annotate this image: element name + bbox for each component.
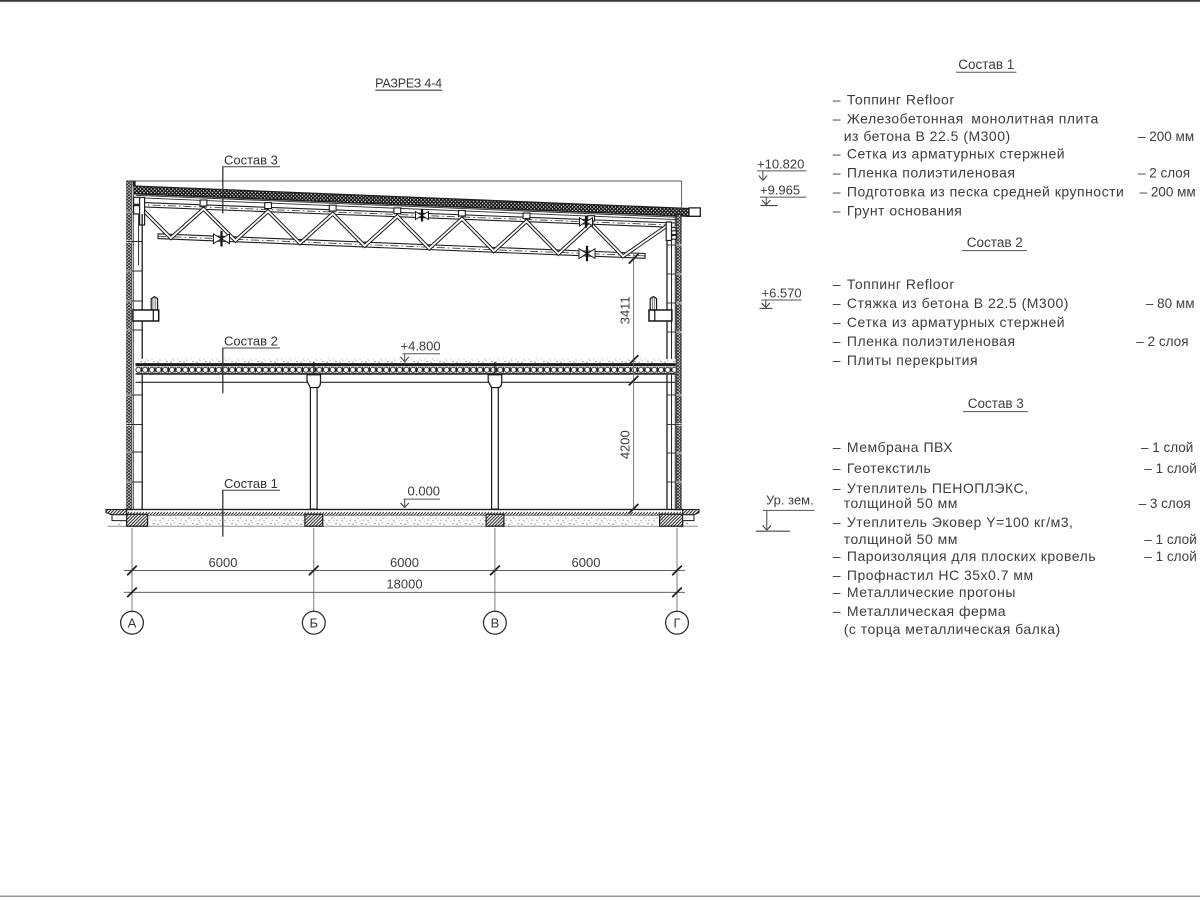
svg-text:Пленка полиэтиленовая: Пленка полиэтиленовая <box>847 164 1016 180</box>
svg-text:6000: 6000 <box>390 555 419 570</box>
svg-text:+9.965: +9.965 <box>760 183 800 198</box>
svg-text:А: А <box>128 615 137 630</box>
svg-text:–: – <box>833 276 841 292</box>
svg-text:В: В <box>491 615 500 630</box>
svg-text:– 200 мм: – 200 мм <box>1138 129 1194 144</box>
svg-text:18000: 18000 <box>386 577 422 592</box>
svg-text:–: – <box>833 584 841 600</box>
svg-text:Ур. зем.: Ур. зем. <box>766 493 814 508</box>
svg-text:Сетка из арматурных стержней: Сетка из арматурных стержней <box>847 314 1065 330</box>
svg-text:Металлические прогоны: Металлические прогоны <box>847 584 1016 600</box>
svg-text:–: – <box>833 514 841 530</box>
svg-text:– 2 слоя: – 2 слоя <box>1138 165 1190 180</box>
svg-text:Утеплитель ПЕНОПЛЭКС,: Утеплитель ПЕНОПЛЭКС, <box>847 480 1029 496</box>
svg-text:6000: 6000 <box>209 555 238 570</box>
svg-text:–: – <box>833 183 841 199</box>
svg-text:Топпинг Refloor: Топпинг Refloor <box>847 276 955 292</box>
svg-text:Пленка полиэтиленовая: Пленка полиэтиленовая <box>847 333 1016 349</box>
svg-text:Пароизоляция для плоских крове: Пароизоляция для плоских кровель <box>847 548 1096 564</box>
svg-text:+10.820: +10.820 <box>757 157 804 172</box>
svg-text:– 80 мм: – 80 мм <box>1146 296 1195 311</box>
svg-text:–: – <box>833 548 841 564</box>
svg-text:–: – <box>833 352 841 368</box>
svg-text:Состав 1: Состав 1 <box>958 57 1014 72</box>
svg-text:Геотекстиль: Геотекстиль <box>847 460 931 476</box>
svg-text:Грунт основания: Грунт основания <box>847 202 962 218</box>
svg-text:–: – <box>833 202 841 218</box>
svg-text:Стяжка из бетона В 22.5 (М300): Стяжка из бетона В 22.5 (М300) <box>847 295 1069 311</box>
svg-text:6000: 6000 <box>572 555 601 570</box>
svg-text:0.000: 0.000 <box>408 484 441 499</box>
svg-text:Состав 3: Состав 3 <box>224 152 278 167</box>
svg-text:(с торца металлическая балка): (с торца металлическая балка) <box>844 621 1061 637</box>
svg-text:из бетона В 22.5 (М300): из бетона В 22.5 (М300) <box>844 128 1011 144</box>
svg-text:Металлическая ферма: Металлическая ферма <box>847 603 1006 619</box>
svg-text:Состав 2: Состав 2 <box>224 334 278 349</box>
svg-text:Состав 1: Состав 1 <box>224 476 278 491</box>
svg-text:Г: Г <box>673 615 680 630</box>
svg-text:– 1 слой: – 1 слой <box>1141 440 1193 455</box>
svg-text:Состав 3: Состав 3 <box>968 396 1024 411</box>
svg-text:+6.570: +6.570 <box>762 285 802 300</box>
svg-text:4200: 4200 <box>618 430 633 459</box>
svg-text:–: – <box>833 295 841 311</box>
svg-text:–: – <box>833 460 841 476</box>
svg-text:Утеплитель Эковер Y=100 кг/м3,: Утеплитель Эковер Y=100 кг/м3, <box>847 514 1074 530</box>
svg-text:– 1 слой: – 1 слой <box>1144 461 1196 476</box>
svg-text:Мембрана ПВХ: Мембрана ПВХ <box>847 439 953 455</box>
svg-text:–: – <box>833 110 841 126</box>
svg-text:–: – <box>833 164 841 180</box>
svg-text:–: – <box>833 567 841 583</box>
svg-text:Б: Б <box>310 615 319 630</box>
svg-text:Состав 2: Состав 2 <box>967 235 1023 250</box>
svg-text:– 1 слой: – 1 слой <box>1144 532 1196 547</box>
svg-text:РАЗРЕЗ 4-4: РАЗРЕЗ 4-4 <box>375 77 442 91</box>
svg-text:– 2 слоя: – 2 слоя <box>1136 334 1188 349</box>
svg-text:толщиной 50 мм: толщиной 50 мм <box>844 531 958 547</box>
svg-text:–: – <box>833 480 841 496</box>
svg-text:– 3 слоя: – 3 слоя <box>1139 496 1191 511</box>
svg-text:–: – <box>833 314 841 330</box>
svg-text:толщиной 50 мм: толщиной 50 мм <box>844 495 958 511</box>
svg-text:–: – <box>833 333 841 349</box>
svg-text:–: – <box>833 145 841 161</box>
svg-text:– 1 слой: – 1 слой <box>1144 549 1196 564</box>
svg-text:Подготовка из песка средней кр: Подготовка из песка средней крупности <box>847 183 1124 199</box>
svg-text:–: – <box>833 92 841 108</box>
svg-text:Профнастил НС 35х0.7 мм: Профнастил НС 35х0.7 мм <box>847 567 1034 583</box>
svg-text:–: – <box>833 603 841 619</box>
svg-text:Железобетонная монолитная плит: Железобетонная монолитная плита <box>847 110 1099 126</box>
svg-text:–: – <box>833 439 841 455</box>
svg-text:Топпинг Refloor: Топпинг Refloor <box>847 92 955 108</box>
svg-text:– 200 мм: – 200 мм <box>1140 184 1196 199</box>
svg-text:Сетка из арматурных стержней: Сетка из арматурных стержней <box>847 145 1065 161</box>
svg-text:+4.800: +4.800 <box>401 339 441 354</box>
svg-text:3411: 3411 <box>618 296 633 324</box>
svg-text:Плиты перекрытия: Плиты перекрытия <box>847 352 978 368</box>
